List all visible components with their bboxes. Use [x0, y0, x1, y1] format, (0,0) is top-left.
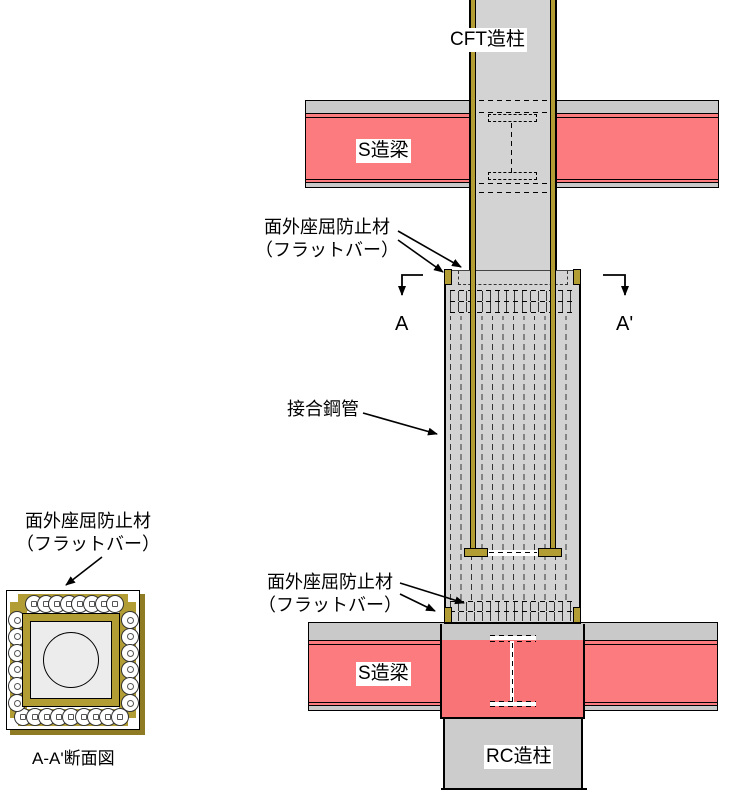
hidden-beam-flange-dash [490, 706, 536, 707]
flatbar-label-line2: （フラットバー） [254, 239, 400, 262]
ring-circle-core [32, 714, 38, 720]
joint-steel-pipe [444, 270, 581, 624]
flat-bar-top-right [573, 269, 581, 285]
hidden-beam-flange-rect [488, 114, 537, 122]
cft-tube-wall-left [470, 0, 476, 550]
flatbar-label-line1: 面外座屈防止材 [257, 571, 403, 594]
cft-tube-section [22, 613, 120, 707]
section-marker-a-prime-label: A' [614, 312, 635, 337]
stud-ticks [450, 302, 576, 312]
flat-bar-top-left [444, 269, 452, 285]
section-shadow-bottom [10, 730, 145, 735]
flatbar-label-line2: （フラットバー） [12, 533, 164, 556]
ring-circle [121, 628, 139, 646]
flatbar-label-line1: 面外座屈防止材 [254, 216, 400, 239]
s-beam-bottom-label: S造梁 [356, 662, 411, 686]
ring-circle [121, 644, 139, 662]
ring-circle-core [127, 633, 134, 640]
hidden-beam-flange-rect [488, 172, 537, 180]
ring-circle-core [127, 617, 134, 624]
flat-bar-bottom-right [573, 607, 581, 623]
s-beam-top-label: S造梁 [356, 139, 411, 163]
rc-column-label: RC造柱 [484, 745, 553, 769]
section-cut-marker-a [402, 275, 423, 295]
hidden-beam-flange-white [490, 636, 536, 640]
leader-arrow-flatbar-top-2 [398, 231, 461, 267]
ring-circle-core [14, 700, 21, 707]
ring-circle-core [14, 666, 21, 673]
rc-column-base-line [441, 788, 587, 790]
flatbar-label-top: 面外座屈防止材 （フラットバー） [252, 216, 402, 261]
cft-concrete-core [30, 621, 112, 699]
stud-row-line [450, 312, 576, 313]
ring-circle [121, 677, 139, 695]
ring-circle-core [93, 714, 99, 720]
ring-circle-core [127, 700, 134, 707]
stud-ticks [450, 602, 576, 611]
section-view [6, 590, 140, 730]
tube-end-plate-right [538, 548, 562, 557]
ring-circle-core [14, 650, 21, 657]
flat-bar-bottom-left [444, 607, 452, 623]
ring-circle-core [127, 666, 134, 673]
ring-circle [121, 694, 139, 712]
ring-circle-core [127, 683, 134, 690]
ring-circle [121, 661, 139, 679]
tube-end-plate-left [464, 548, 488, 557]
ring-circle-core [105, 714, 111, 720]
cft-tube-section-wall [23, 614, 119, 706]
ring-circle-core [127, 650, 134, 657]
tube-end-plate-middle [488, 550, 538, 556]
ring-circle-core [56, 714, 62, 720]
joint-pipe-label: 接合鋼管 [285, 398, 361, 421]
ring-circle-core [81, 714, 87, 720]
structural-detail-diagram: CFT造柱 S造梁 面外座屈防止材 （フラットバー） A A' 接合鋼管 面外座… [0, 0, 738, 801]
ring-circle-core [20, 714, 26, 720]
hidden-beam-bottom-line [470, 183, 556, 184]
ring-circle-core [14, 683, 21, 690]
ring-circle-core [68, 714, 74, 720]
section-title: A-A'断面図 [30, 748, 117, 769]
cft-tube-wall-right [550, 0, 556, 550]
ring-circle-core [112, 601, 118, 607]
joint-pipe-top-line [444, 270, 581, 271]
core-circle [43, 632, 99, 688]
flatbar-label-section: 面外座屈防止材 （フラットバー） [10, 510, 166, 555]
hidden-slab-line [470, 100, 556, 101]
hidden-beam-web [511, 122, 512, 173]
section-marker-a-label: A [393, 312, 410, 337]
hidden-beam-bottom-line [470, 192, 556, 193]
hidden-beam-top-line [470, 112, 556, 113]
leader-arrow-flatbar-top-1 [398, 240, 443, 272]
leader-arrow-flatbar-section [66, 557, 102, 585]
leader-arrow-joint-pipe [363, 413, 437, 434]
flatbar-label-bottom: 面外座屈防止材 （フラットバー） [255, 571, 405, 616]
flatbar-label-line2: （フラットバー） [257, 594, 403, 617]
stud-ticks [450, 291, 576, 301]
hidden-beam-web-dash [512, 641, 513, 702]
hidden-bars-dashed [450, 316, 576, 600]
ring-circle-core [14, 633, 21, 640]
ring-circle [121, 611, 139, 629]
flatbar-label-line1: 面外座屈防止材 [12, 510, 164, 533]
section-cut-marker-a-prime [603, 275, 625, 295]
leader-arrow-flatbar-bottom-2 [400, 594, 435, 611]
ring-circle-core [44, 714, 50, 720]
section-shadow-right [140, 594, 145, 734]
tube-end-plate-dash [489, 552, 537, 553]
ring-circle-core [117, 714, 123, 720]
cft-column-label: CFT造柱 [448, 28, 527, 52]
ring-circle [106, 595, 124, 613]
ring-circle-core [14, 617, 21, 624]
stud-ticks [450, 612, 576, 621]
